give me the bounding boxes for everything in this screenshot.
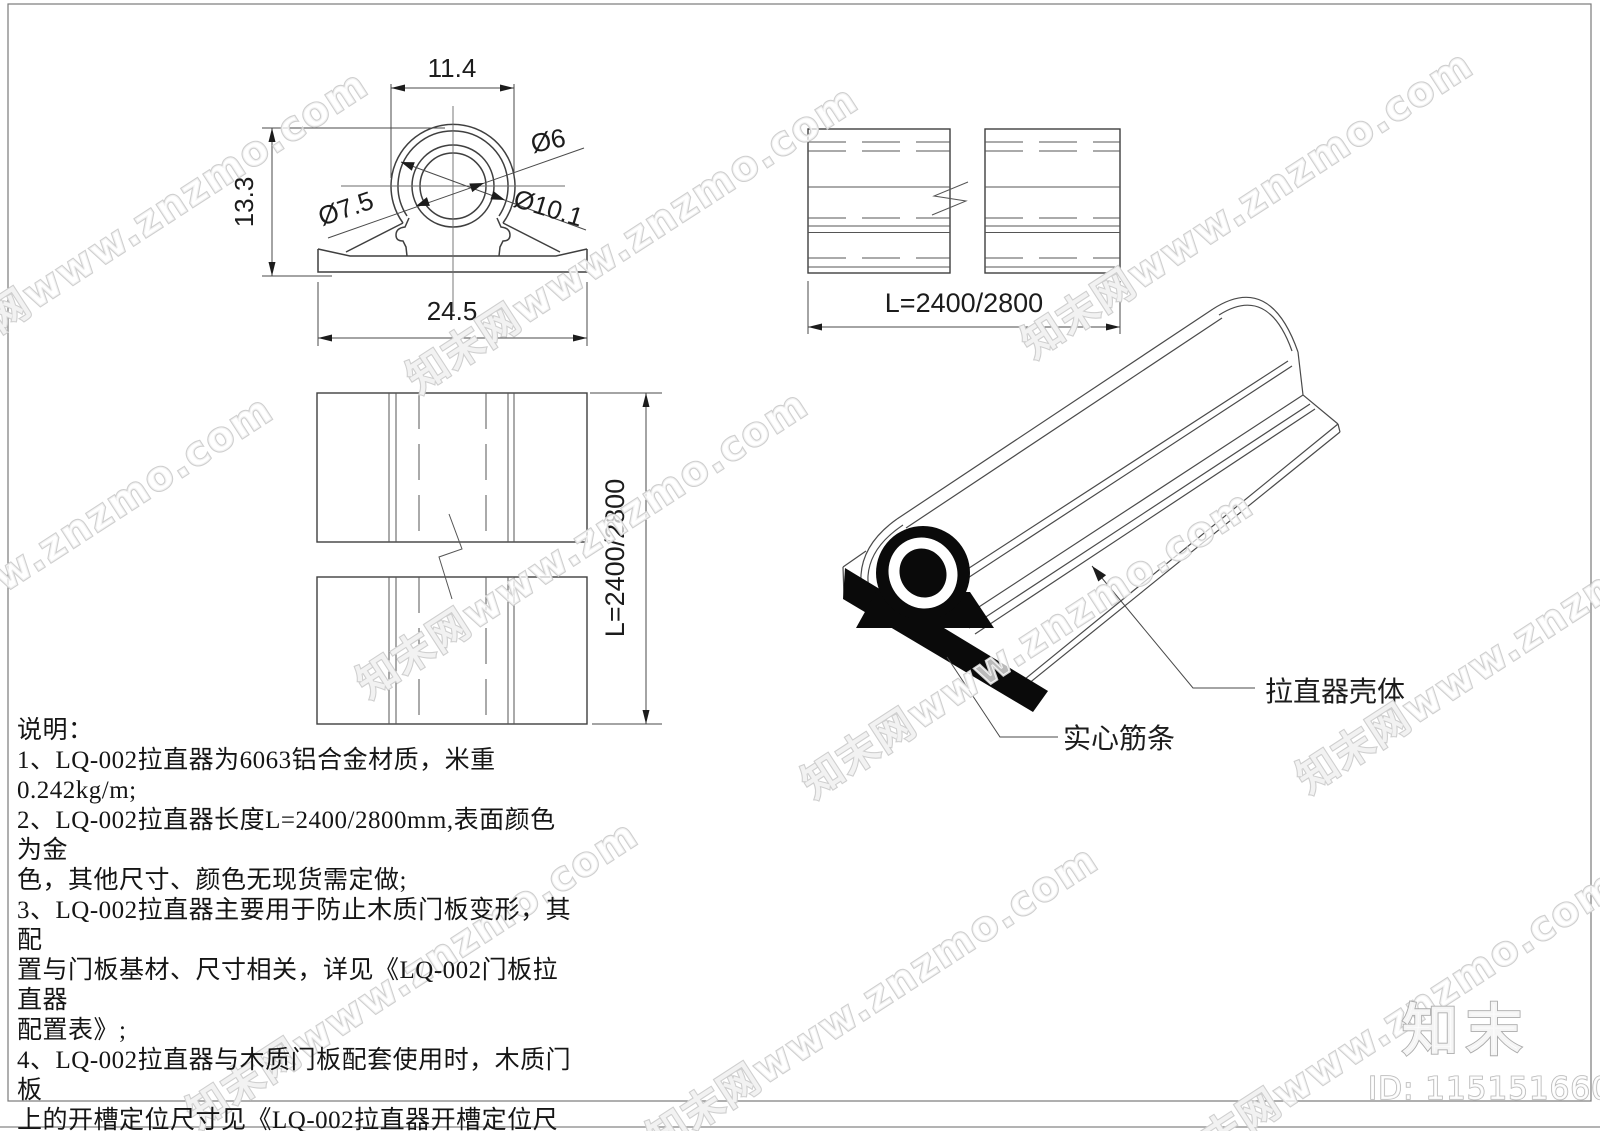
watermark-text: 知末网www.znzmo.com xyxy=(399,76,867,402)
notes-line: 色，其他尺寸、颜色无现货需定做; xyxy=(17,866,577,896)
right-slant xyxy=(503,223,560,252)
watermark-text: 知末网www.znzmo.com xyxy=(1014,41,1482,367)
notes-line: 上的开槽定位尺寸见《LQ-002拉直器开槽定位尺寸》 xyxy=(17,1106,577,1131)
notes-line: 3、LQ-002拉直器主要用于防止木质门板变形，其配 xyxy=(17,896,577,956)
break-symbol xyxy=(439,514,462,599)
dim-dia-bore: Ø6 xyxy=(528,122,568,159)
dim-dia-inner: Ø7.5 xyxy=(314,185,377,232)
watermark-text: 知末网www.znzmo.com xyxy=(0,386,282,712)
cad-sheet: 11.4 13.3 24.5 Ø7.5 Ø6 Ø10.1 xyxy=(0,0,1600,1131)
dim-length-side: L=2400/2800 xyxy=(885,288,1043,318)
notes-title: 说明： xyxy=(17,716,577,746)
notes-line: 置与门板基材、尺寸相关，详见《LQ-002门板拉直器 xyxy=(17,956,577,1016)
sheet-id: ID: 1151516603 xyxy=(1368,1071,1600,1107)
dim-width-top: 11.4 xyxy=(428,53,477,83)
watermark-text: 知末网www.znzmo.com xyxy=(639,836,1107,1131)
site-logo: 知末 xyxy=(1402,999,1530,1064)
notes-line: 4、LQ-002拉直器与木质门板配套使用时，木质门板 xyxy=(17,1046,577,1106)
base-top xyxy=(318,249,587,256)
notes-line: 配置表》; xyxy=(17,1016,577,1046)
watermark-text: 知末网www.znzmo.com xyxy=(349,381,817,707)
notes-block: 说明： 1、LQ-002拉直器为6063铝合金材质，米重 0.242kg/m; … xyxy=(17,716,577,1131)
branding: 知末 ID: 1151516603 xyxy=(1368,999,1600,1107)
rib-label: 实心筋条 xyxy=(1063,723,1175,755)
notes-line: 1、LQ-002拉直器为6063铝合金材质，米重 xyxy=(17,746,577,776)
dim-dia-outer: Ø10.1 xyxy=(510,183,587,232)
notes-line: 2、LQ-002拉直器长度L=2400/2800mm,表面颜色为金 xyxy=(17,806,577,866)
notes-line: 0.242kg/m; xyxy=(17,776,577,806)
watermark-text: 知末网www.znzmo.com xyxy=(1289,476,1600,802)
left-slant xyxy=(346,223,403,252)
